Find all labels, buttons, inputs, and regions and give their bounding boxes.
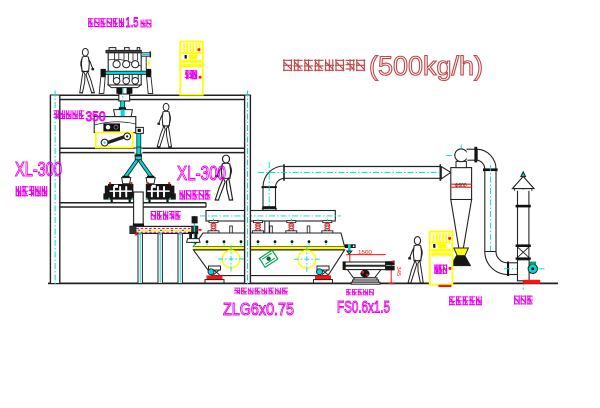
svg-text:XL-300: XL-300 — [177, 162, 226, 185]
svg-text:Φ600: Φ600 — [455, 183, 467, 189]
svg-text:1.5: 1.5 — [126, 15, 139, 30]
svg-text:345: 345 — [395, 267, 401, 277]
svg-text:(500kg/h): (500kg/h) — [369, 51, 483, 81]
svg-text:XL-300: XL-300 — [15, 158, 62, 181]
svg-text:1500: 1500 — [358, 250, 372, 256]
svg-text:ZLG6x0.75: ZLG6x0.75 — [223, 299, 294, 319]
svg-text:350: 350 — [86, 109, 106, 124]
svg-text:FS0.6x1.5: FS0.6x1.5 — [337, 298, 390, 316]
